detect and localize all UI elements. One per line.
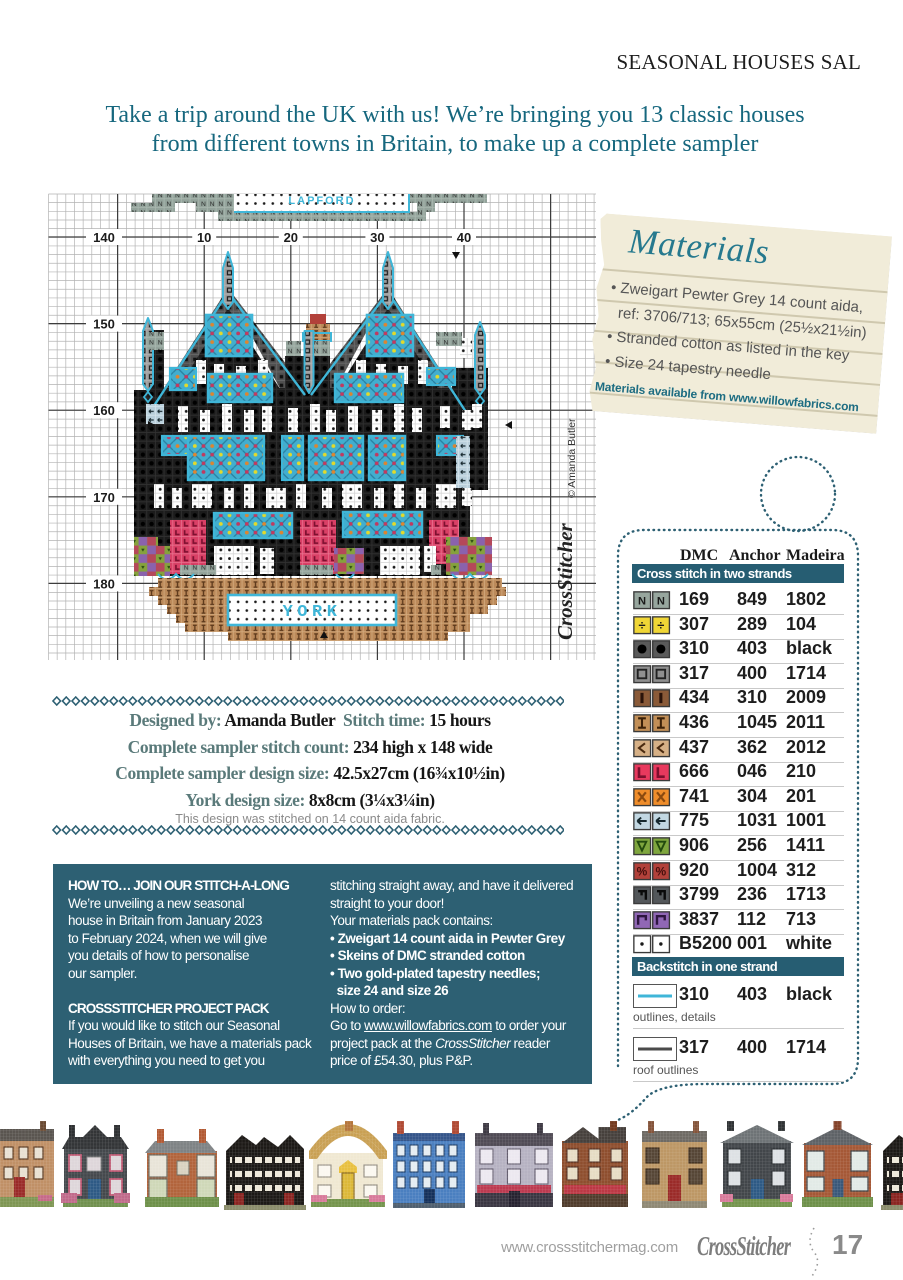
svg-text:%: % [637,864,648,878]
svg-text:%: % [656,864,667,878]
svg-text:N: N [657,595,665,607]
svg-text:÷: ÷ [638,617,645,632]
svg-text:÷: ÷ [657,617,664,632]
svg-text:N: N [638,595,646,607]
